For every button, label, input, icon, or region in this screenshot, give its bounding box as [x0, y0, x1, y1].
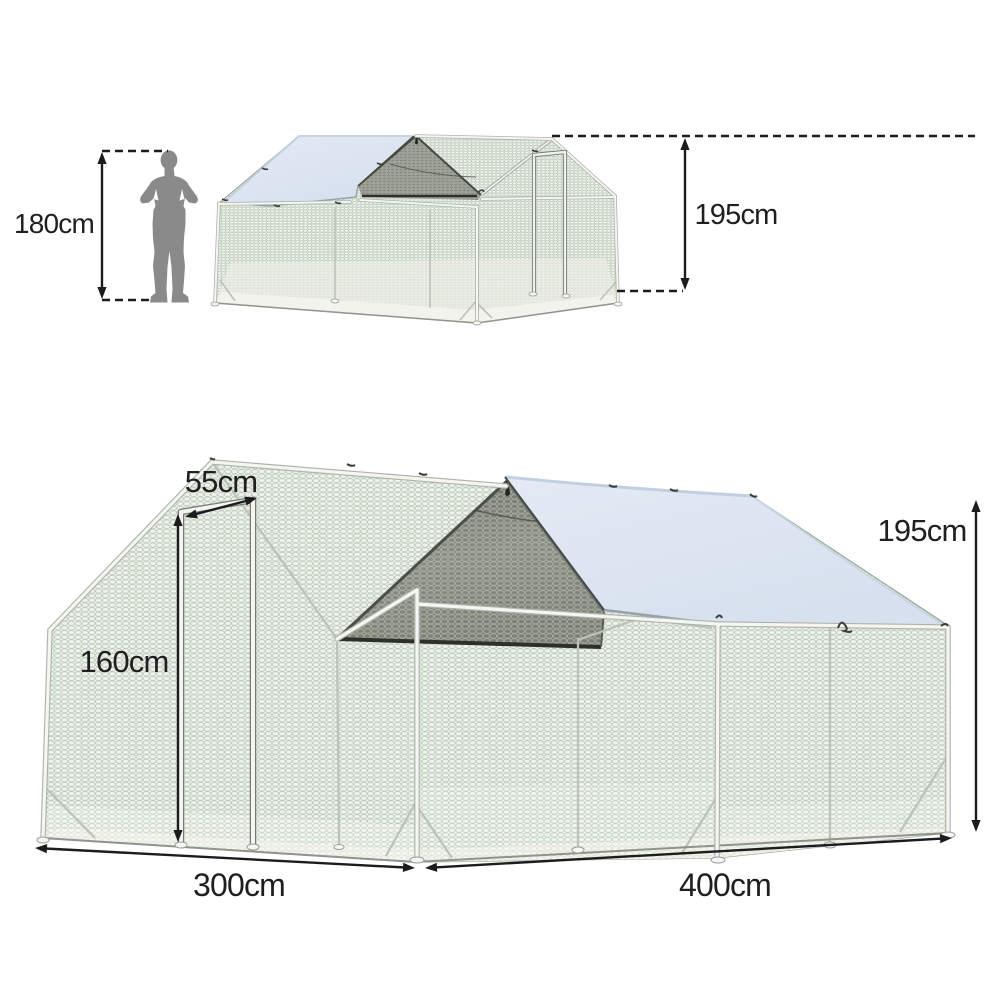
svg-text:300cm: 300cm [193, 867, 285, 903]
svg-text:180cm: 180cm [14, 208, 94, 239]
svg-text:195cm: 195cm [694, 199, 777, 231]
svg-text:195cm: 195cm [877, 513, 966, 548]
svg-text:55cm: 55cm [185, 464, 258, 499]
svg-text:400cm: 400cm [679, 867, 771, 903]
svg-text:160cm: 160cm [79, 644, 168, 679]
